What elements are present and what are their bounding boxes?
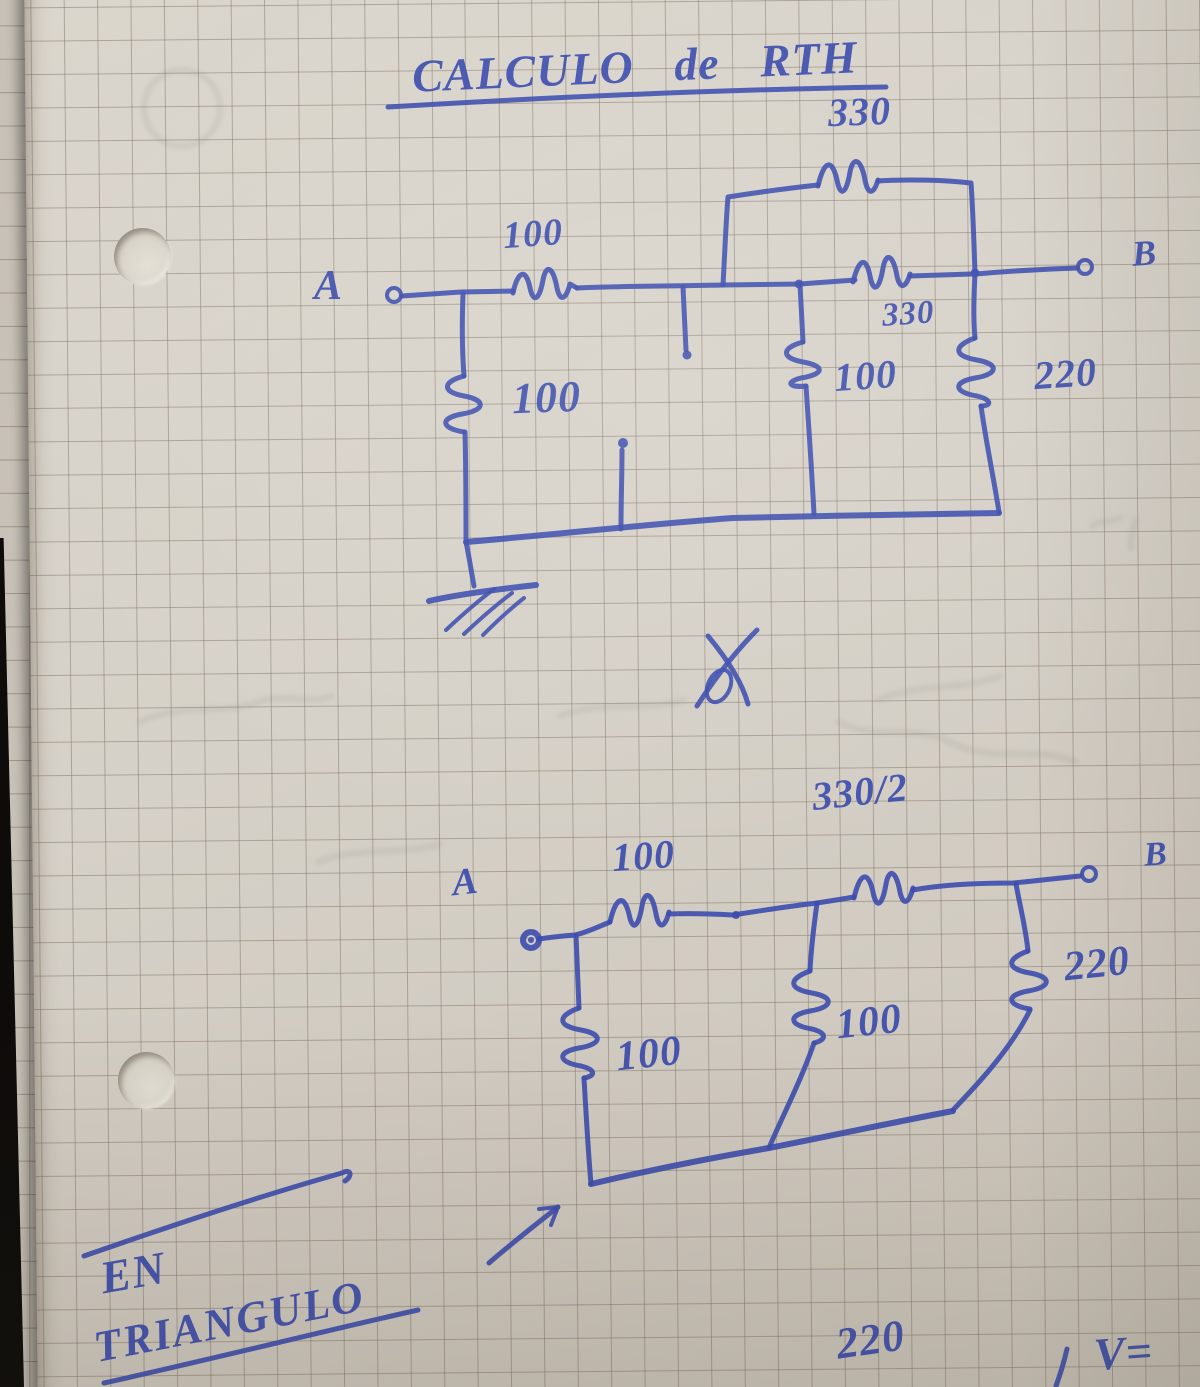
resistor-label-series-100-b: 100: [610, 830, 676, 881]
resistor-label-330-over-2: 330/2: [810, 763, 911, 820]
node-a-label-top: A: [314, 262, 343, 310]
resistor-label-shunt-mid-100: 100: [832, 350, 898, 401]
node-b-label-bottom: B: [1143, 835, 1169, 875]
resistor-label-mid-330: 330: [881, 294, 936, 335]
resistor-label-top-330: 330: [827, 87, 892, 136]
notebook-photo: CALCULO de RTH 330 A 100 100 330 100 220…: [0, 0, 1200, 1387]
punch-hole-top: [114, 228, 171, 285]
resistor-label-shunt-mid-100-b: 100: [834, 995, 905, 1050]
resistor-label-shunt-100-b: 100: [614, 1027, 685, 1082]
resistor-label-shunt-220: 220: [1032, 348, 1098, 399]
note-220: 220: [833, 1309, 908, 1369]
node-b-label-top: B: [1131, 231, 1159, 275]
note-en: EN: [96, 1241, 170, 1305]
resistor-label-shunt-220-b: 220: [1062, 937, 1133, 992]
resistor-label-shunt-100: 100: [511, 371, 582, 424]
note-v-equals: V=: [1092, 1324, 1154, 1381]
resistor-label-series-100: 100: [502, 210, 565, 258]
graph-paper-sheet: [24, 0, 1200, 1387]
node-a-label-bottom: A: [450, 859, 481, 906]
punch-hole-bottom: [118, 1052, 175, 1109]
